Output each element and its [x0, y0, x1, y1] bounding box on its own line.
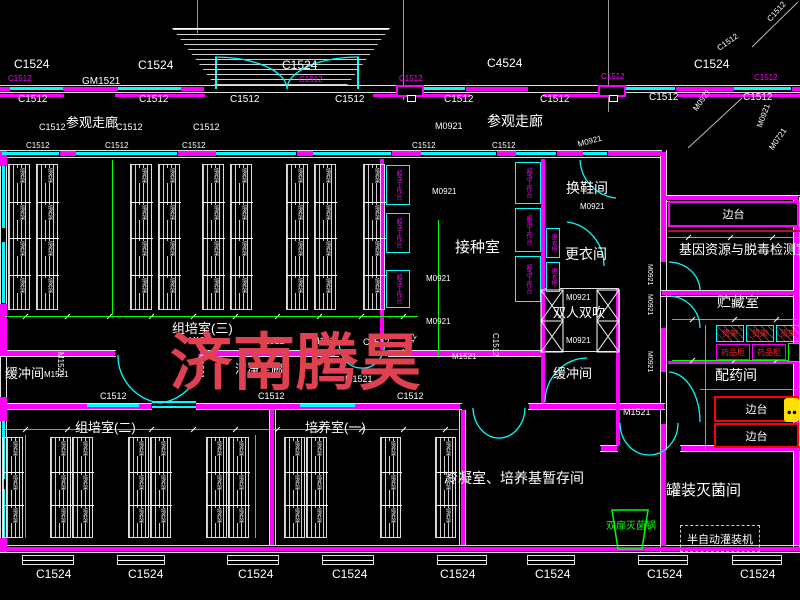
label-C1512: C1512 — [399, 75, 423, 84]
label-C1524: C1524 — [535, 568, 570, 581]
label-C1512: C1512 — [8, 75, 32, 84]
label-组培室(二): 组培室(二) — [75, 421, 136, 435]
label-C1512: C1512 — [601, 73, 625, 82]
label-双扉灭菌锅: 双扉灭菌锅 — [606, 521, 656, 532]
label-M0921: M0921 — [426, 318, 450, 327]
label-培养室(一): 培养室(一) — [305, 421, 366, 435]
label-M0921: M0921 — [580, 203, 604, 212]
label-C1512: C1512 — [193, 123, 220, 133]
label-C1512: C1512 — [230, 94, 259, 105]
label-M0921: M0921 — [426, 275, 450, 284]
label-C1512: C1512 — [299, 76, 323, 85]
drawing-overlay — [0, 0, 800, 600]
label-参观走廊: 参观走廊 — [66, 116, 118, 130]
label-M1521: M1521 — [55, 352, 64, 376]
label-C1524: C1524 — [138, 59, 173, 72]
label-C1524: C1524 — [238, 568, 273, 581]
label-缓冲间: 缓冲间 — [553, 367, 592, 381]
door-arc — [669, 296, 700, 328]
label-M0921: M0921 — [645, 351, 653, 372]
label-C1512: C1512 — [444, 94, 473, 105]
label-双人双吹: 双人双吹 — [553, 306, 605, 320]
label-接种室: 接种室 — [455, 240, 500, 257]
cad-floorplan-canvas: 济南腾昊 培养架培养架培养架培养架培养架培养架培养架培养架培养架培养架培养架培养… — [0, 0, 800, 600]
label-配药间: 配药间 — [715, 368, 757, 383]
label-C1512: C1512 — [18, 94, 47, 105]
label-C1512: C1512 — [182, 142, 206, 151]
label-C1512: C1512 — [335, 94, 364, 105]
air-shower-symbol — [541, 321, 563, 352]
label-参观走廊: 参观走廊 — [487, 114, 543, 129]
label-GM1521: GM1521 — [82, 76, 120, 87]
air-shower-symbol — [597, 321, 619, 352]
label-C1512: C1512 — [26, 142, 50, 151]
label-冷凝室、培养基暂存间: 冷凝室、培养基暂存间 — [444, 471, 584, 486]
label-M0921: M0921 — [435, 122, 463, 132]
door-arc — [620, 423, 649, 455]
label-M0921: M0921 — [566, 337, 590, 346]
label-C4524: C4524 — [487, 57, 522, 70]
label-C1524: C1524 — [647, 568, 682, 581]
label-C1512: C1512 — [649, 92, 678, 103]
label-C1524: C1524 — [282, 59, 317, 72]
label-C1512: C1512 — [490, 333, 499, 357]
label-M1521: M1521 — [452, 353, 476, 362]
door-arc — [473, 408, 499, 438]
label-M0921: M0921 — [645, 294, 653, 315]
label-换鞋间: 换鞋间 — [566, 181, 608, 196]
watermark-text: 济南腾昊 — [170, 332, 422, 394]
label-缓冲间: 缓冲间 — [5, 367, 44, 381]
label-C1524: C1524 — [332, 568, 367, 581]
label-C1524: C1524 — [36, 568, 71, 581]
label-M1521: M1521 — [623, 408, 651, 418]
door-arc — [215, 57, 287, 89]
label-贮藏室: 贮藏室 — [717, 295, 759, 310]
label-C1524: C1524 — [694, 58, 729, 71]
label-M0921: M0921 — [432, 188, 456, 197]
label-C1524: C1524 — [128, 568, 163, 581]
label-罐装灭菌间: 罐装灭菌间 — [666, 483, 741, 500]
label-C1524: C1524 — [14, 58, 49, 71]
label-更衣间: 更衣间 — [565, 247, 607, 262]
door-arc — [499, 408, 525, 438]
label-C1512: C1512 — [754, 74, 778, 83]
label-C1524: C1524 — [440, 568, 475, 581]
label-C1512: C1512 — [743, 92, 772, 103]
label-C1512: C1512 — [139, 94, 168, 105]
label-C1512: C1512 — [116, 123, 143, 133]
label-基因资源与脱毒检测室: 基因资源与脱毒检测室 — [679, 243, 800, 257]
label-C1512: C1512 — [492, 142, 516, 151]
door-arc — [669, 372, 700, 422]
label-C1512: C1512 — [39, 123, 66, 133]
label-C1512: C1512 — [412, 142, 436, 151]
label-C1512: C1512 — [100, 392, 127, 402]
label-M0921: M0921 — [566, 294, 590, 303]
door-arc — [669, 262, 700, 290]
label-M0921: M0921 — [645, 264, 653, 285]
door-arc — [649, 423, 678, 455]
label-C1524: C1524 — [740, 568, 775, 581]
label-C1512: C1512 — [105, 142, 129, 151]
label-C1512: C1512 — [540, 94, 569, 105]
